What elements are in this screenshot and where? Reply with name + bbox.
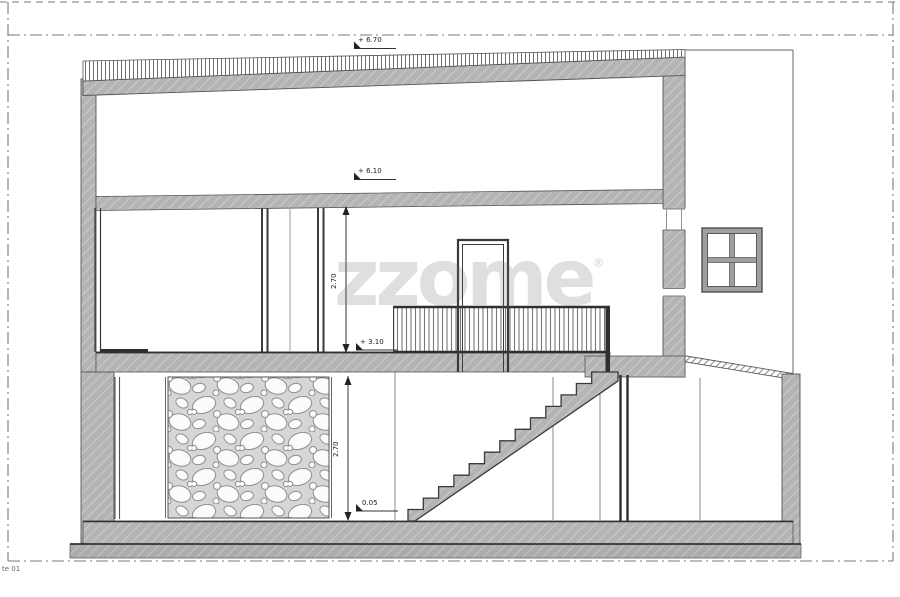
upper-floor-slab xyxy=(96,352,610,372)
dim-ground-floor-height: 2.70 xyxy=(332,441,340,457)
rear-volume-elevation xyxy=(683,50,800,544)
right-wall-opening-upper xyxy=(662,209,686,231)
window-elevation xyxy=(702,228,762,292)
partition-wall xyxy=(262,208,324,352)
under-landing-wall xyxy=(621,375,628,521)
watermark: zzome® xyxy=(334,240,605,318)
level-ground: 0.05 xyxy=(362,499,378,507)
ground-floor-slab xyxy=(83,521,793,544)
pebble-panel xyxy=(168,377,329,518)
registered-mark: ® xyxy=(593,256,605,270)
section-drawing-canvas: zzome® + 6.70 + 6.10 + 3.10 0.05 2.70 2.… xyxy=(0,0,900,597)
left-wall-lower xyxy=(81,372,114,543)
right-wall-opening-lower xyxy=(662,288,686,297)
ceiling-slab xyxy=(96,190,663,211)
ground-strip xyxy=(70,544,801,558)
left-wall-upper xyxy=(81,79,96,372)
background-elevation-lines xyxy=(395,357,600,520)
dim-upper-floor-height: 2.70 xyxy=(330,273,338,289)
sheet-corner-label: te 01 xyxy=(2,565,20,573)
upper-floor-interior xyxy=(95,208,324,353)
staircase xyxy=(408,372,618,521)
level-attic-slab: + 6.10 xyxy=(358,167,382,175)
sloped-parapet xyxy=(683,356,793,380)
level-upper-floor: + 3.10 xyxy=(360,338,384,346)
floor-bar xyxy=(100,349,148,353)
level-roof: + 6.70 xyxy=(358,36,382,44)
rear-right-wall xyxy=(782,374,800,544)
watermark-text: zzome xyxy=(334,234,593,324)
